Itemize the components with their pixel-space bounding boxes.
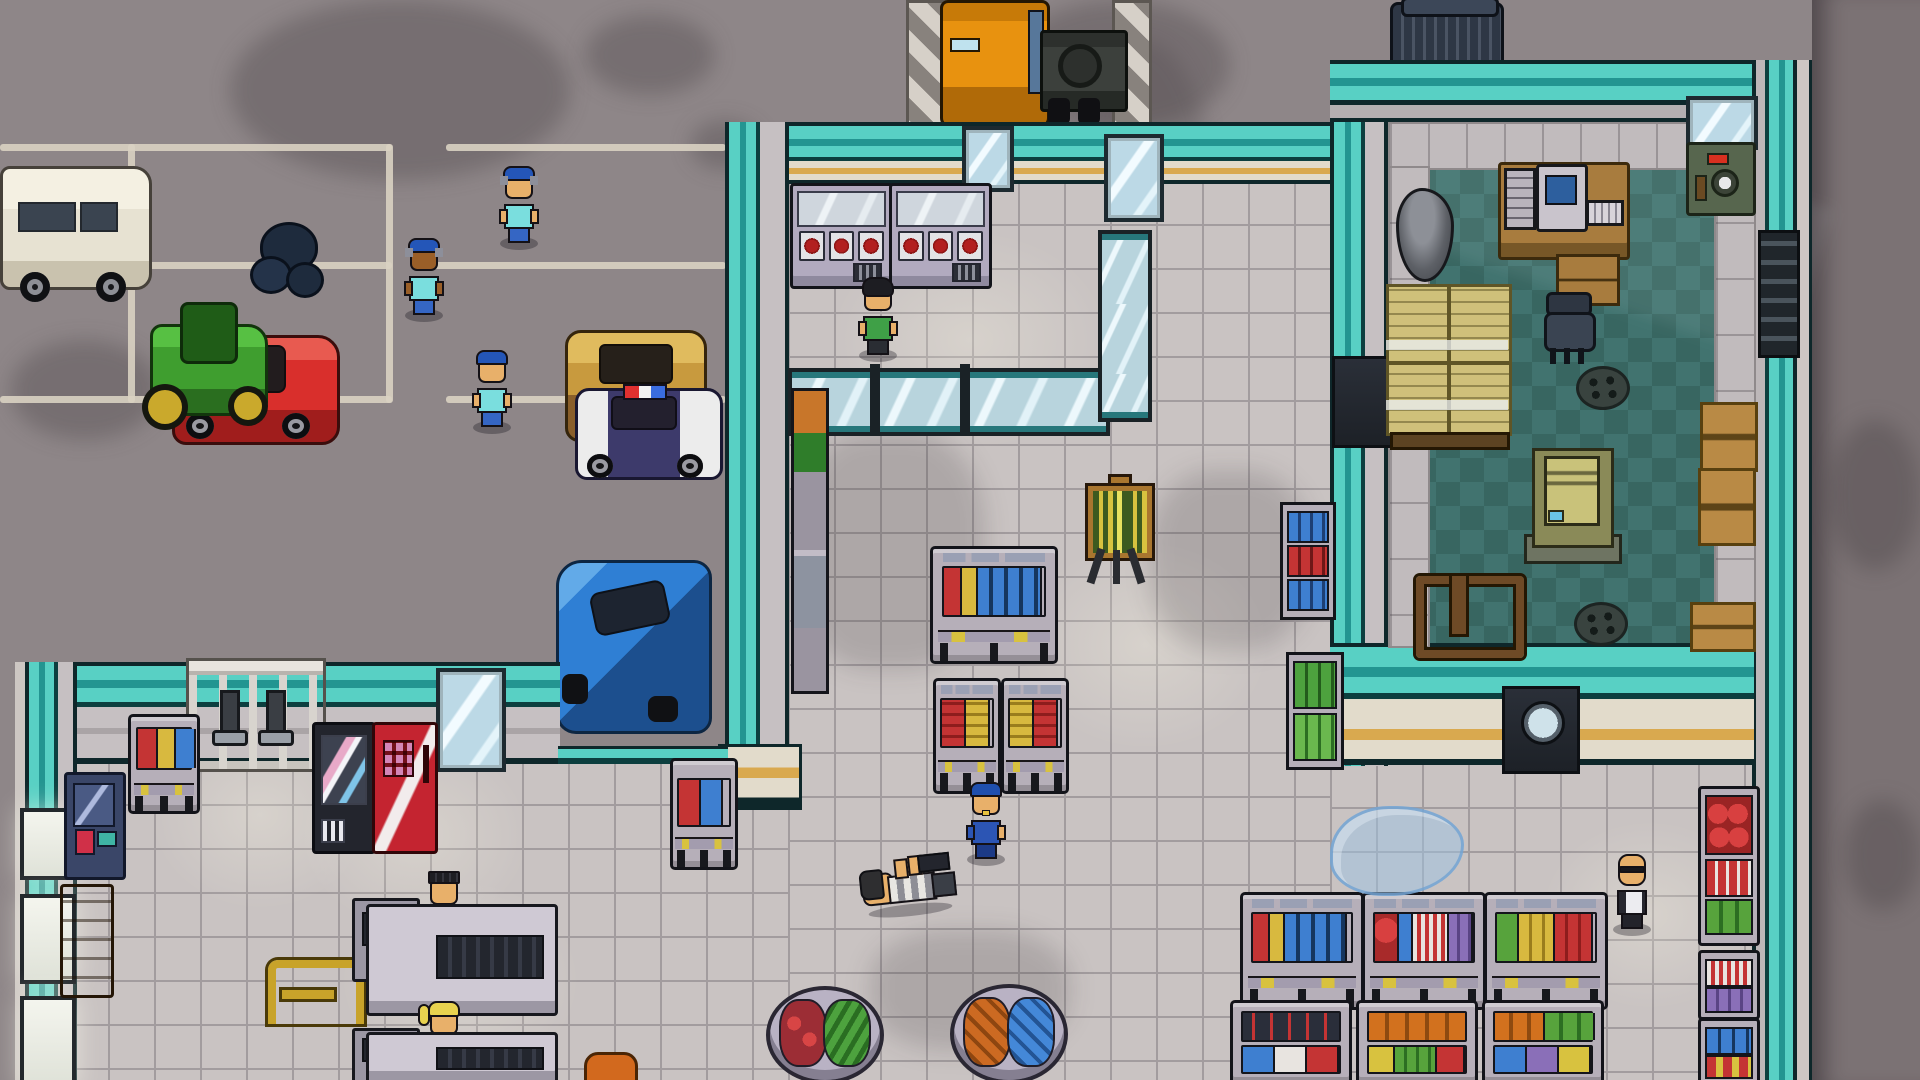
fridge-row: [1287, 545, 1329, 577]
safe[interactable]: [1686, 142, 1756, 216]
glass-partition: [788, 368, 1110, 436]
price-tags: [943, 553, 1046, 562]
monitor-screen: [1545, 175, 1577, 205]
front-window: [436, 668, 506, 772]
strap-band: [1386, 340, 1508, 350]
shelf-items: [1241, 1045, 1341, 1075]
wall-north: [725, 122, 1330, 184]
frame-bar: [1452, 576, 1466, 634]
price-tags: [1009, 685, 1061, 694]
side-window: [20, 996, 76, 1080]
parking-line: [386, 144, 393, 403]
shelf-items: [1493, 1011, 1593, 1042]
drinks-fridge[interactable]: [1280, 502, 1336, 620]
sign-easel[interactable]: [1084, 482, 1150, 586]
shelf-items: [1705, 987, 1752, 1013]
trash-bag: [286, 262, 324, 298]
turnstile[interactable]: [258, 690, 290, 756]
npc-worker[interactable]: [470, 348, 514, 434]
npc-clerk[interactable]: [856, 276, 900, 362]
glass-column: [1098, 230, 1152, 422]
vending-keypad: [321, 819, 345, 843]
shelf-base: [134, 783, 195, 795]
truck-wheel: [1078, 98, 1100, 124]
arm: [472, 393, 481, 408]
shelf-items: [1008, 698, 1061, 748]
crate: [1448, 284, 1512, 364]
dumpster-lid: [1401, 0, 1499, 17]
produce-bin[interactable]: [766, 986, 884, 1080]
blue-car: [552, 556, 714, 738]
shelf-items: [942, 566, 1047, 617]
freezer-meat: [799, 231, 884, 261]
freezer-glass: [797, 191, 886, 227]
bin-melons: [823, 999, 871, 1067]
car-windows: [599, 344, 673, 384]
shelf-legs: [1008, 773, 1063, 791]
hair: [862, 277, 894, 297]
arcade-cabinet[interactable]: [64, 772, 126, 880]
wall-shelf[interactable]: [1698, 950, 1760, 1020]
meat-freezer[interactable]: [790, 183, 893, 289]
goods-shelf[interactable]: [1240, 892, 1364, 1010]
shelf-base: [1248, 976, 1357, 988]
partition-post: [870, 364, 880, 432]
price-tags: [1252, 899, 1351, 908]
suit-torso: [1617, 890, 1647, 915]
floor-drain: [1574, 602, 1628, 646]
computer-tower[interactable]: [1504, 168, 1536, 230]
parking-line: [0, 144, 392, 151]
parking-line: [432, 262, 726, 269]
basket-stand-bar: [282, 990, 334, 999]
concrete-stain: [1845, 800, 1920, 910]
shelf-items: [940, 698, 993, 748]
conveyor-belt: [436, 935, 544, 979]
arcade-buttons: [97, 831, 117, 847]
price-tags: [941, 685, 993, 694]
price-tags: [1496, 899, 1595, 908]
wall-east: [1752, 60, 1812, 1080]
arm: [503, 393, 512, 408]
spiky-hair: [428, 871, 460, 884]
shelf-items: [1705, 899, 1752, 935]
shelf-items: [1705, 1027, 1752, 1055]
easel-leg: [1113, 550, 1120, 584]
van-window: [80, 202, 118, 232]
game-scene: [0, 0, 1920, 1080]
cardboard-box: [1700, 402, 1758, 472]
arm: [997, 825, 1006, 840]
legs: [931, 871, 957, 897]
arm: [530, 209, 539, 224]
sunglasses-icon: [1619, 866, 1645, 873]
arm: [404, 281, 413, 296]
freezer-meat: [898, 231, 983, 261]
shelf-items: [1705, 1055, 1752, 1079]
stockroom-door[interactable]: [1332, 356, 1394, 448]
shelf-legs: [677, 850, 732, 867]
ponytail: [418, 1004, 430, 1026]
arm: [499, 209, 508, 224]
wall-ladder[interactable]: [1758, 230, 1800, 358]
shelf-base: [675, 837, 732, 849]
conveyor-belt: [436, 1047, 544, 1069]
goods-shelf[interactable]: [1356, 1000, 1478, 1080]
wall-shelf-strip[interactable]: [791, 388, 829, 694]
basket-stand[interactable]: [268, 960, 364, 1024]
van-window: [18, 202, 76, 232]
bin-packs-blue: [1007, 997, 1055, 1067]
arm: [889, 321, 898, 336]
car-wheel: [562, 674, 588, 704]
produce-fridge[interactable]: [1286, 652, 1344, 770]
wall-west: [725, 122, 789, 744]
van-wheel: [20, 272, 50, 302]
shelf-items: [1373, 912, 1475, 963]
shelf-items: [1251, 912, 1353, 963]
car-wheel: [282, 413, 310, 439]
police-car: [575, 388, 723, 488]
wall-window: [1104, 134, 1164, 222]
shelf-items: [1367, 1045, 1467, 1075]
shelf-items: [1367, 1011, 1467, 1042]
police-windows: [611, 396, 677, 430]
office-chair[interactable]: [1536, 292, 1600, 370]
cap-icon: [476, 350, 508, 365]
badge-icon: [982, 810, 990, 816]
shelf-items: [1493, 1045, 1593, 1075]
pallet-frame: [1416, 576, 1524, 658]
shelf-legs: [940, 643, 1047, 661]
goods-shelf[interactable]: [1482, 1000, 1604, 1080]
price-tags: [1374, 899, 1473, 908]
shelf-base: [1370, 976, 1479, 988]
concrete-stain: [1830, 420, 1920, 570]
checkout-counter: [366, 1032, 558, 1080]
npc-shopper-partial[interactable]: [584, 1052, 638, 1080]
trash-bags: [250, 222, 322, 302]
green-tractor: [146, 298, 270, 428]
npc-worker[interactable]: [402, 236, 446, 322]
bench[interactable]: [60, 884, 114, 998]
safe-handle: [1695, 175, 1707, 201]
tractor-wheel: [234, 392, 262, 420]
freezer-glass: [896, 191, 985, 227]
headphones-icon: [405, 248, 443, 257]
npc-downed-inmate[interactable]: [859, 851, 961, 921]
vent-icon: [952, 263, 981, 282]
police-wheel: [587, 454, 613, 478]
drinks-shelf[interactable]: [930, 546, 1058, 664]
chair-seat: [1544, 312, 1596, 352]
beanie-icon: [858, 869, 885, 901]
stockroom-south-door[interactable]: [1502, 686, 1580, 774]
parking-line: [446, 144, 726, 151]
keyboard: [1586, 200, 1624, 226]
asphalt-stain: [230, 0, 570, 180]
fridge-row: [1293, 713, 1337, 761]
npc-officer[interactable]: [964, 780, 1008, 866]
shelf-items: [1241, 1011, 1341, 1042]
shelf-items: [677, 778, 730, 827]
crate: [1448, 362, 1512, 436]
npc-agent[interactable]: [1610, 850, 1654, 936]
safe-led: [1707, 153, 1729, 165]
tractor-wheel: [148, 390, 182, 424]
fridge-row: [1287, 511, 1329, 543]
headphones-icon: [500, 176, 538, 185]
porthole-icon: [1521, 701, 1565, 745]
vending-selection: [383, 740, 413, 777]
police-cap-icon: [970, 782, 1002, 797]
dropped-item: [917, 852, 951, 873]
turnstile-arm: [212, 730, 248, 746]
computer-monitor[interactable]: [1536, 164, 1588, 232]
shelf-base: [938, 760, 995, 772]
police-wheel: [677, 454, 703, 478]
truck-window: [950, 38, 980, 52]
shelf-items: [1705, 859, 1752, 897]
crate: [1386, 362, 1450, 436]
crate: [1386, 284, 1450, 364]
cardboard-box: [1698, 468, 1756, 546]
safe-dial: [1711, 169, 1739, 197]
meat-freezer[interactable]: [889, 183, 992, 289]
entrance-gate: [186, 658, 326, 772]
partition-post: [960, 364, 970, 432]
shelf-items: [1705, 795, 1752, 855]
shelf-items: [136, 727, 193, 770]
bin-packs-orange: [963, 997, 1011, 1067]
goods-shelf[interactable]: [128, 714, 200, 814]
vending-machine-snack[interactable]: [312, 722, 376, 854]
floor-drain: [1576, 366, 1630, 410]
turnstile[interactable]: [212, 690, 244, 756]
goods-shelf[interactable]: [1362, 892, 1486, 1010]
chair-base: [1550, 348, 1584, 364]
arm: [435, 281, 444, 296]
car-wheel: [648, 696, 678, 722]
police-lightbar: [623, 384, 667, 400]
wall-shelf[interactable]: [1698, 1018, 1760, 1080]
arm: [966, 825, 975, 840]
shelf-items: [1495, 912, 1597, 963]
truck-wheel: [1048, 98, 1070, 124]
fridge-row: [1293, 661, 1337, 709]
goods-shelf[interactable]: [1001, 678, 1069, 794]
pallet: [1390, 432, 1510, 450]
semi-truck: [940, 0, 1126, 140]
crate-pallet: [1386, 284, 1512, 444]
asphalt-stain: [10, 340, 160, 440]
vending-machine-soda[interactable]: [372, 722, 438, 854]
wall-shelf[interactable]: [1698, 786, 1760, 946]
arcade-screen: [73, 783, 115, 827]
van-wheel: [96, 272, 126, 302]
shelf-legs: [135, 796, 193, 811]
bin-tomatoes: [779, 999, 827, 1067]
turnstile-arm: [258, 730, 294, 746]
arcade-decal: [75, 829, 95, 855]
generator-label: [1548, 510, 1564, 522]
asphalt-stain: [585, 15, 715, 95]
produce-bin[interactable]: [950, 984, 1068, 1080]
shelf-base: [1006, 760, 1063, 772]
shelf-items: [1705, 959, 1752, 987]
trailer-emblem: [1058, 44, 1102, 88]
strap-band: [1386, 400, 1508, 410]
generator[interactable]: [1518, 448, 1622, 560]
cardboard-box: [1690, 602, 1756, 652]
vending-coin-slot: [423, 745, 429, 783]
npc-worker[interactable]: [497, 164, 541, 250]
vending-window: [321, 735, 367, 805]
arm: [858, 321, 867, 336]
tractor-canopy: [180, 302, 238, 364]
goods-shelf[interactable]: [670, 758, 738, 870]
goods-shelf[interactable]: [933, 678, 1001, 794]
shelf-base: [1492, 976, 1601, 988]
blonde-hair: [428, 1001, 460, 1017]
shelf-base: [938, 630, 1050, 642]
white-van: [0, 160, 152, 310]
goods-shelf[interactable]: [1484, 892, 1608, 1010]
goods-shelf[interactable]: [1230, 1000, 1352, 1080]
fridge-row: [1287, 579, 1329, 611]
